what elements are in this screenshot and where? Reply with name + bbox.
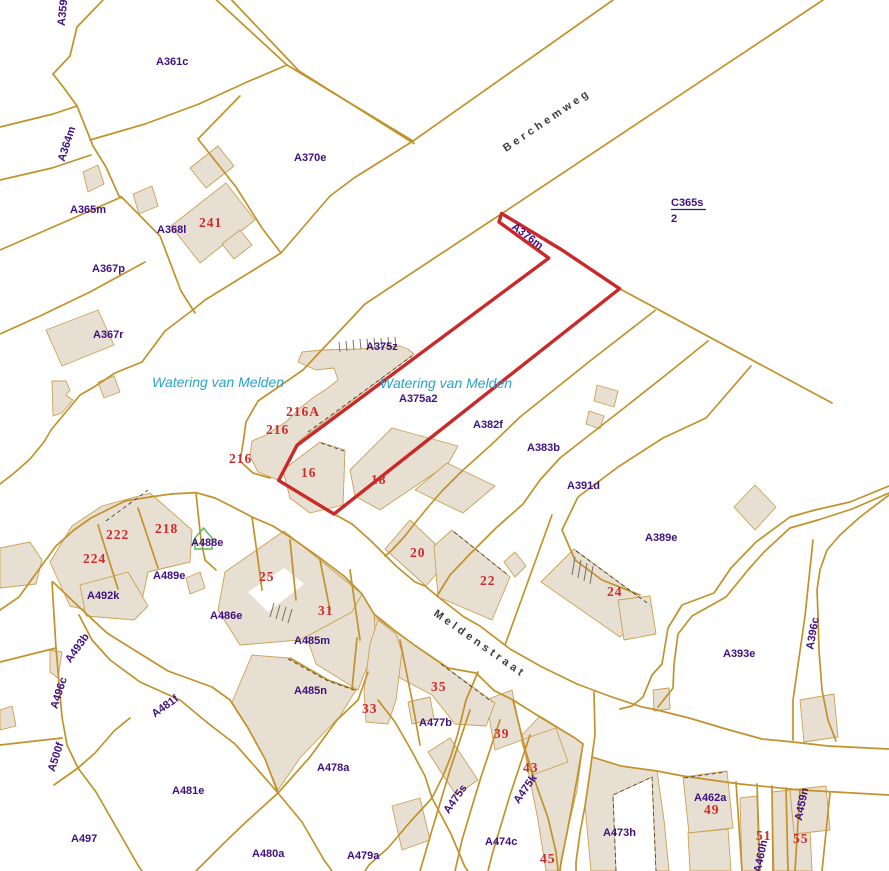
svg-text:A375a2: A375a2 (399, 393, 438, 405)
svg-text:20: 20 (410, 545, 426, 560)
svg-text:55: 55 (793, 831, 809, 846)
svg-text:39: 39 (494, 726, 510, 741)
svg-text:A478a: A478a (317, 762, 350, 774)
svg-text:A383b: A383b (527, 442, 560, 454)
svg-text:A368l: A368l (157, 224, 186, 236)
svg-text:222: 222 (106, 527, 129, 542)
svg-text:C365s: C365s (671, 197, 703, 209)
svg-text:A375z: A375z (366, 341, 398, 353)
svg-text:A393e: A393e (723, 648, 755, 660)
svg-text:A473h: A473h (603, 827, 636, 839)
svg-text:A365m: A365m (70, 204, 106, 216)
svg-text:A492k: A492k (87, 590, 120, 602)
svg-text:241: 241 (199, 215, 222, 230)
svg-text:218: 218 (155, 521, 178, 536)
svg-text:31: 31 (318, 603, 334, 618)
svg-text:A479a: A479a (347, 850, 380, 862)
svg-text:A489e: A489e (153, 570, 185, 582)
svg-text:A361c: A361c (156, 56, 188, 68)
svg-text:25: 25 (259, 569, 275, 584)
svg-text:Watering van Melden: Watering van Melden (152, 374, 284, 390)
svg-text:A481e: A481e (172, 785, 204, 797)
svg-text:16: 16 (301, 465, 317, 480)
svg-text:A382f: A382f (473, 419, 503, 431)
svg-text:224: 224 (83, 551, 106, 566)
svg-text:24: 24 (607, 584, 623, 599)
svg-text:A497: A497 (71, 833, 97, 845)
svg-text:A485m: A485m (294, 635, 330, 647)
svg-text:45: 45 (540, 851, 556, 866)
svg-text:A389e: A389e (645, 532, 677, 544)
svg-text:Watering van Melden: Watering van Melden (380, 375, 512, 391)
svg-text:A391d: A391d (567, 480, 600, 492)
svg-text:49: 49 (704, 802, 720, 817)
svg-text:A370e: A370e (294, 152, 326, 164)
svg-text:A474c: A474c (485, 836, 517, 848)
svg-text:A488e: A488e (191, 537, 223, 549)
svg-text:43: 43 (523, 760, 539, 775)
svg-text:A477b: A477b (419, 717, 452, 729)
svg-text:216A: 216A (286, 404, 320, 419)
svg-text:A367r: A367r (93, 329, 124, 341)
svg-text:18: 18 (371, 472, 387, 487)
svg-text:216: 216 (229, 451, 252, 466)
svg-text:A367p: A367p (92, 263, 125, 275)
svg-text:216: 216 (266, 422, 289, 437)
svg-text:2: 2 (671, 213, 677, 225)
svg-text:33: 33 (362, 701, 378, 716)
svg-text:35: 35 (431, 679, 447, 694)
svg-text:A480a: A480a (252, 848, 285, 860)
svg-text:A485n: A485n (294, 685, 327, 697)
svg-text:22: 22 (480, 573, 496, 588)
svg-text:A486e: A486e (210, 610, 242, 622)
